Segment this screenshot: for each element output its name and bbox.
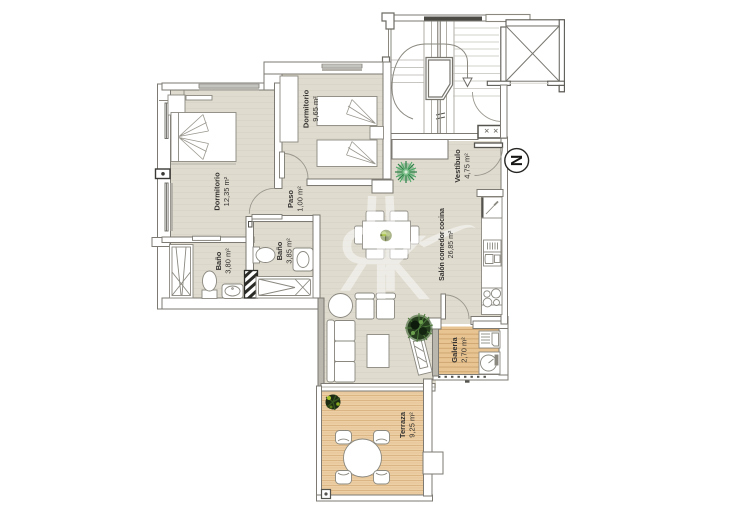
svg-text:Dormitorio: Dormitorio xyxy=(213,172,222,211)
svg-text:Baño: Baño xyxy=(214,251,223,270)
svg-text:9,25 m²: 9,25 m² xyxy=(408,412,417,438)
svg-text:1,00 m²: 1,00 m² xyxy=(296,186,305,212)
svg-text:Galería: Galería xyxy=(450,336,459,362)
svg-text:Vestíbulo: Vestíbulo xyxy=(453,149,462,183)
svg-text:Terraza: Terraza xyxy=(398,411,407,438)
svg-text:3,80 m²: 3,80 m² xyxy=(224,248,233,274)
svg-text:Paso: Paso xyxy=(286,190,295,208)
svg-text:12,35 m²: 12,35 m² xyxy=(222,176,231,206)
svg-text:Baño: Baño xyxy=(275,241,284,260)
svg-text:4,75 m²: 4,75 m² xyxy=(463,153,472,179)
svg-text:9,65 m²: 9,65 m² xyxy=(311,96,320,122)
svg-text:Salón comedor cocina: Salón comedor cocina xyxy=(439,208,446,281)
svg-text:N: N xyxy=(509,155,526,167)
svg-text:K: K xyxy=(369,217,430,319)
svg-text:26,85 m²: 26,85 m² xyxy=(448,230,455,258)
svg-text:3,85 m²: 3,85 m² xyxy=(285,238,294,264)
svg-text:Dormitorio: Dormitorio xyxy=(302,89,311,128)
svg-text:2,70 m²: 2,70 m² xyxy=(460,337,469,363)
